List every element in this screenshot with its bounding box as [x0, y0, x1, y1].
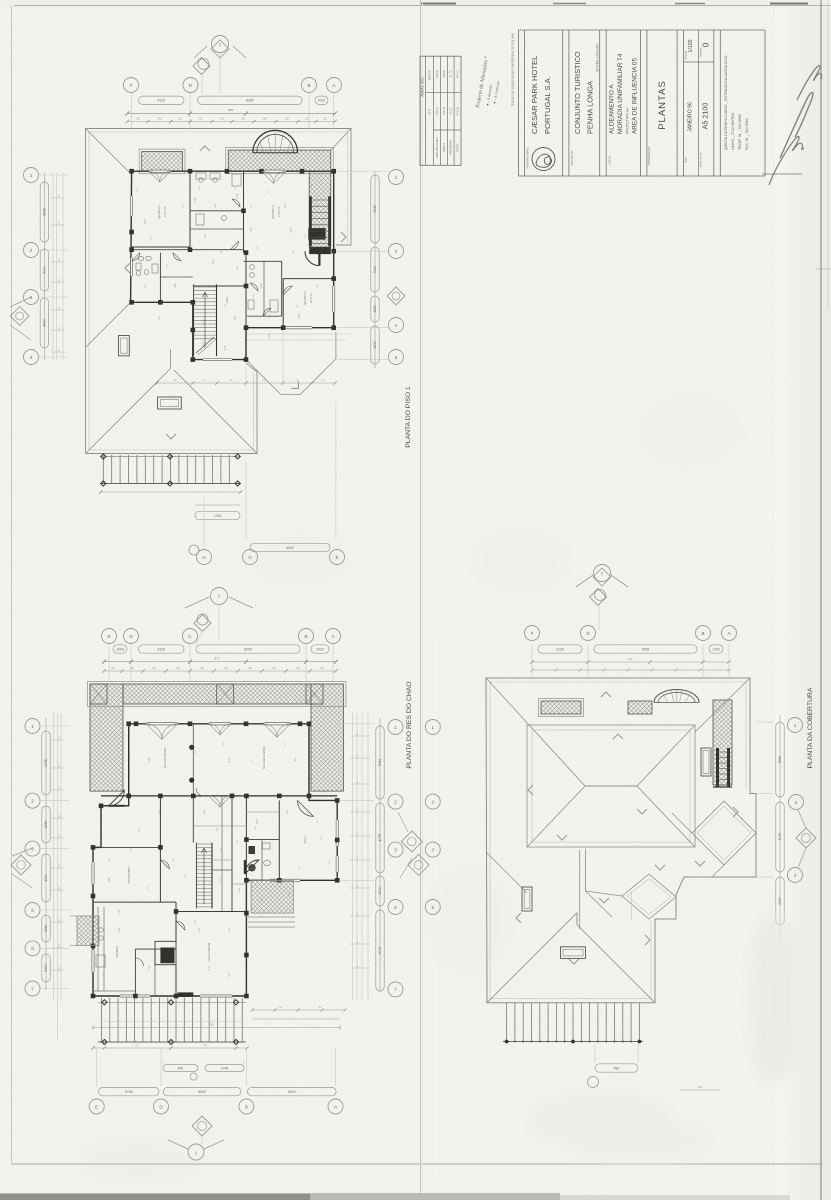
svg-text:Escala: Escala	[684, 50, 688, 59]
svg-text:4.20: 4.20	[212, 259, 215, 264]
svg-text:2022: 2022	[318, 99, 326, 103]
svg-text:QUARTO 1: QUARTO 1	[271, 205, 275, 219]
svg-text:PROTOTIPO A4: PROTOTIPO A4	[626, 108, 630, 134]
svg-text:4: 4	[30, 355, 33, 360]
svg-text:VARANDAS: VARANDAS	[449, 140, 453, 156]
svg-text:1: 1	[395, 175, 398, 180]
svg-text:872: 872	[628, 657, 633, 661]
svg-text:12.10 m2: 12.10 m2	[310, 292, 313, 303]
svg-text:2.10: 2.10	[236, 193, 239, 198]
svg-text:1.90: 1.90	[174, 283, 177, 288]
svg-text:4360: 4360	[43, 319, 47, 327]
svg-text:AREA DE INFLUENCIA 05: AREA DE INFLUENCIA 05	[632, 58, 639, 134]
svg-text:14.80 m2: 14.80 m2	[164, 206, 167, 217]
svg-text:Data: Data	[684, 157, 688, 163]
svg-text:1200: 1200	[712, 647, 720, 651]
svg-text:5: 5	[395, 355, 398, 360]
svg-text:4129: 4129	[556, 647, 564, 651]
svg-text:2: 2	[795, 800, 798, 805]
svg-text:1: 1	[432, 725, 435, 730]
svg-text:PLANTAS: PLANTAS	[657, 80, 668, 130]
svg-text:3: 3	[394, 847, 397, 852]
svg-text:QUARTO 2: QUARTO 2	[157, 205, 161, 219]
svg-text:E: E	[95, 1104, 98, 1109]
svg-text:E: E	[335, 555, 338, 560]
svg-text:5345: 5345	[43, 208, 47, 216]
svg-text:7.08: 7.08	[203, 319, 206, 324]
svg-text:861: 861	[228, 108, 233, 112]
svg-text:LOCAL: LOCAL	[608, 155, 612, 165]
svg-text:5: 5	[31, 908, 34, 913]
svg-text:COZINHA: COZINHA	[115, 946, 119, 958]
svg-text:0: 0	[701, 42, 711, 47]
svg-text:8259: 8259	[642, 647, 650, 651]
svg-text:225.60: 225.60	[435, 69, 439, 78]
svg-text:100: 100	[698, 1085, 703, 1089]
svg-text:1/100: 1/100	[688, 39, 694, 52]
svg-text:1890: 1890	[373, 305, 377, 313]
svg-text:2: 2	[432, 799, 435, 804]
svg-text:B: B	[307, 83, 310, 88]
svg-text:PORTUGAL S.A.: PORTUGAL S.A.	[543, 76, 552, 134]
svg-text:PROPRIETARIO: PROPRIETARIO	[526, 147, 530, 169]
svg-text:3460: 3460	[44, 964, 48, 972]
svg-text:G: G	[248, 555, 252, 560]
svg-text:PLANTA DA COBERTURA: PLANTA DA COBERTURA	[807, 687, 814, 768]
svg-text:5010: 5010	[43, 266, 47, 274]
svg-text:CÆSAR PARK HOTEL: CÆSAR PARK HOTEL	[530, 56, 539, 134]
svg-text:45.15: 45.15	[449, 107, 453, 114]
svg-text:2055: 2055	[44, 821, 48, 829]
svg-text:3.05: 3.05	[108, 877, 111, 882]
svg-text:SALA: SALA	[303, 836, 307, 843]
svg-text:4075: 4075	[778, 833, 782, 841]
svg-text:2640: 2640	[44, 925, 48, 933]
svg-text:4: 4	[395, 323, 398, 328]
svg-text:PENHA LONGA: PENHA LONGA	[586, 81, 595, 134]
svg-text:990: 990	[614, 1066, 620, 1070]
svg-text:447.15: 447.15	[455, 69, 459, 78]
svg-text:ESCRITORIO: ESCRITORIO	[127, 867, 131, 884]
svg-text:2: 2	[395, 249, 398, 254]
svg-text:6009: 6009	[286, 546, 294, 550]
svg-text:SINTRA-CASCAIS: SINTRA-CASCAIS	[596, 43, 600, 72]
svg-text:2.26: 2.26	[260, 283, 263, 288]
svg-text:B: B	[245, 1104, 248, 1109]
svg-text:3.45: 3.45	[290, 227, 293, 232]
svg-text:169.80: 169.80	[442, 69, 446, 78]
svg-text:2300: 2300	[778, 897, 782, 905]
svg-text:400: 400	[178, 1066, 184, 1070]
svg-text:F: F	[130, 83, 133, 88]
svg-text:5345: 5345	[378, 759, 382, 767]
svg-text:PLANTA DO PISO 1: PLANTA DO PISO 1	[405, 386, 412, 448]
svg-text:E: E	[107, 634, 110, 639]
svg-text:1.35: 1.35	[250, 227, 253, 232]
svg-text:51.75: 51.75	[449, 70, 453, 77]
svg-text:ALDEAMENTO A: ALDEAMENTO A	[609, 84, 616, 134]
svg-text:17.60 m2: 17.60 m2	[278, 206, 281, 217]
svg-text:3: 3	[31, 846, 34, 851]
svg-text:6009: 6009	[288, 1090, 296, 1094]
svg-text:204.10: 204.10	[435, 106, 439, 115]
svg-text:1.50: 1.50	[298, 313, 301, 318]
svg-text:PROJECTO: PROJECTO	[570, 150, 574, 166]
svg-text:1: 1	[30, 173, 33, 178]
svg-text:7: 7	[31, 986, 34, 991]
svg-text:Desenho N.: Desenho N.	[699, 152, 703, 167]
svg-text:QUARTO 3: QUARTO 3	[303, 291, 307, 305]
svg-text:1004: 1004	[116, 647, 124, 651]
svg-text:6: 6	[31, 946, 34, 951]
svg-text:1.50: 1.50	[194, 197, 197, 202]
svg-text:482: 482	[210, 1024, 215, 1027]
svg-text:FAX. 01 _ 924 9002: FAX. 01 _ 924 9002	[745, 118, 749, 150]
svg-text:J: J	[195, 1150, 197, 1155]
svg-text:2: 2	[394, 799, 397, 804]
svg-text:F: F	[531, 631, 534, 636]
svg-text:UTIL: UTIL	[428, 108, 432, 115]
svg-text:2022: 2022	[316, 647, 324, 651]
svg-text:2.30: 2.30	[256, 819, 259, 824]
svg-text:RES DO CHAO: RES DO CHAO	[435, 137, 439, 158]
svg-text:2: 2	[31, 799, 34, 804]
svg-text:1: 1	[31, 724, 34, 729]
svg-text:3.16: 3.16	[224, 345, 227, 350]
svg-text:TELEF. 01 _ 924 9000: TELEF. 01 _ 924 9000	[738, 114, 742, 150]
svg-text:8259: 8259	[244, 647, 252, 651]
svg-text:403.55: 403.55	[455, 106, 459, 115]
svg-text:SALA DE ESTAR: SALA DE ESTAR	[163, 748, 167, 769]
svg-text:BRUTA: BRUTA	[428, 70, 432, 80]
svg-text:JANEIRO 96: JANEIRO 96	[688, 102, 694, 132]
svg-text:LINHO _ 2710 SINTRA: LINHO _ 2710 SINTRA	[731, 112, 735, 150]
svg-text:PLANTA DO RES DO CHAO: PLANTA DO RES DO CHAO	[406, 681, 413, 768]
svg-text:7: 7	[394, 987, 397, 992]
svg-text:4129: 4129	[157, 647, 165, 651]
svg-text:TOTAL: TOTAL	[455, 143, 459, 152]
svg-text:6.10: 6.10	[228, 757, 231, 762]
svg-text:MORADIA UNIFAMILIAR T4: MORADIA UNIFAMILIAR T4	[617, 53, 624, 134]
svg-text:3120: 3120	[373, 266, 377, 274]
svg-text:5: 5	[432, 905, 435, 910]
svg-text:5: 5	[394, 905, 397, 910]
svg-text:PISO 1: PISO 1	[442, 142, 446, 152]
svg-text:4: 4	[794, 873, 797, 878]
svg-text:4.47: 4.47	[268, 333, 271, 338]
svg-text:B: B	[304, 634, 307, 639]
svg-text:2300: 2300	[378, 887, 382, 895]
svg-text:3: 3	[432, 847, 435, 852]
svg-text:1: 1	[794, 723, 797, 728]
svg-text:6009: 6009	[378, 947, 382, 955]
svg-text:6345: 6345	[44, 759, 48, 767]
svg-text:3.60: 3.60	[144, 219, 147, 224]
svg-text:SALA DE JANTAR: SALA DE JANTAR	[262, 747, 266, 769]
svg-text:5365: 5365	[778, 756, 782, 764]
svg-text:2630: 2630	[373, 341, 377, 349]
svg-text:1: 1	[394, 725, 397, 730]
svg-text:5345: 5345	[373, 205, 377, 213]
svg-text:4360: 4360	[44, 874, 48, 882]
svg-text:4129: 4129	[157, 99, 165, 103]
svg-text:CONJUNTO TURISTICO: CONJUNTO TURISTICO	[573, 51, 582, 134]
svg-text:2: 2	[30, 248, 33, 253]
svg-text:8259: 8259	[246, 99, 254, 103]
svg-text:1745: 1745	[214, 514, 222, 518]
svg-text:154.30: 154.30	[442, 106, 446, 115]
svg-text:TODAS AS DIMENSOES REFEREM-SE: TODAS AS DIMENSOES REFEREM-SE EQ MM	[511, 33, 515, 107]
svg-text:QUINTA DA PENHA LONGA _ EST: QUINTA DA PENHA LONGA _ ESTRADA DA LAGOA…	[724, 55, 728, 150]
svg-text:HALL: HALL	[225, 296, 229, 303]
svg-text:H: H	[202, 555, 205, 560]
svg-text:B: B	[701, 631, 704, 636]
svg-text:5745: 5745	[125, 1090, 133, 1094]
svg-text:1745: 1745	[221, 1066, 229, 1070]
svg-text:8509: 8509	[198, 1090, 206, 1094]
svg-text:A5 2100: A5 2100	[701, 103, 710, 130]
svg-text:SALA COMUM: SALA COMUM	[207, 942, 211, 961]
svg-text:872: 872	[214, 657, 219, 661]
svg-text:AREAS (M2): AREAS (M2)	[421, 77, 425, 96]
svg-text:DESIGNAÇÃO: DESIGNAÇÃO	[646, 146, 651, 165]
svg-text:4075: 4075	[378, 834, 382, 842]
svg-text:4.50: 4.50	[148, 757, 151, 762]
